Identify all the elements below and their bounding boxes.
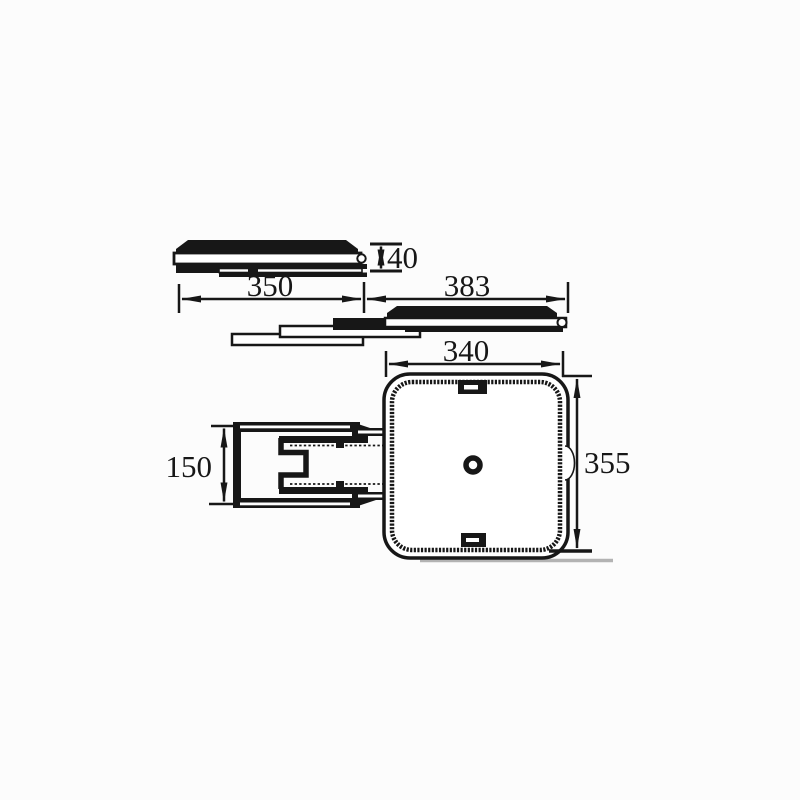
plate-right-bump-fill xyxy=(565,446,575,480)
middle-slide-profile xyxy=(174,253,361,264)
dimension-label-355: 355 xyxy=(584,445,631,480)
bracket-bottom-stop-tab xyxy=(336,481,344,488)
dimension-340: 340 xyxy=(386,333,563,377)
plate-top-tab-slot xyxy=(464,385,478,390)
bracket-bottom-extension-groove xyxy=(358,495,384,498)
bracket-top-extension-groove xyxy=(358,431,384,434)
lower-slide-left-block xyxy=(176,264,222,273)
extended-bottom-edge xyxy=(405,327,563,332)
bracket-inner-top-rail xyxy=(279,436,368,443)
bracket-top-rail-groove xyxy=(240,426,350,429)
dimension-label-40: 40 xyxy=(387,240,418,275)
bracket-bottom-rail-groove xyxy=(240,503,350,506)
bracket-inner-bottom-rail xyxy=(279,487,368,494)
dimension-label-350: 350 xyxy=(247,268,294,303)
dimension-label-340: 340 xyxy=(443,333,490,368)
extended-side-view xyxy=(232,306,567,345)
bracket-top-stop-tab xyxy=(336,441,344,448)
extended-middle-profile xyxy=(385,318,566,327)
technical-drawing: 40 350 383 xyxy=(0,0,800,800)
extended-end-roller-circle xyxy=(558,318,567,327)
plate-top-view xyxy=(384,374,613,561)
slide-bracket-top-view xyxy=(233,422,386,508)
bracket-left-wall xyxy=(233,422,241,508)
top-plate-profile xyxy=(176,240,358,253)
drawing-canvas: 40 350 383 xyxy=(0,0,800,800)
bracket-center-clip xyxy=(281,438,306,489)
extended-top-plate-profile xyxy=(387,306,557,318)
dimension-40: 40 xyxy=(370,240,418,275)
dimension-label-150: 150 xyxy=(166,449,213,484)
plate-bottom-tab-slot xyxy=(466,538,479,542)
plate-center-pivot-hole xyxy=(466,458,480,472)
end-roller-circle xyxy=(357,254,365,262)
dimension-150: 150 xyxy=(166,426,241,504)
dimension-label-383: 383 xyxy=(444,268,491,303)
